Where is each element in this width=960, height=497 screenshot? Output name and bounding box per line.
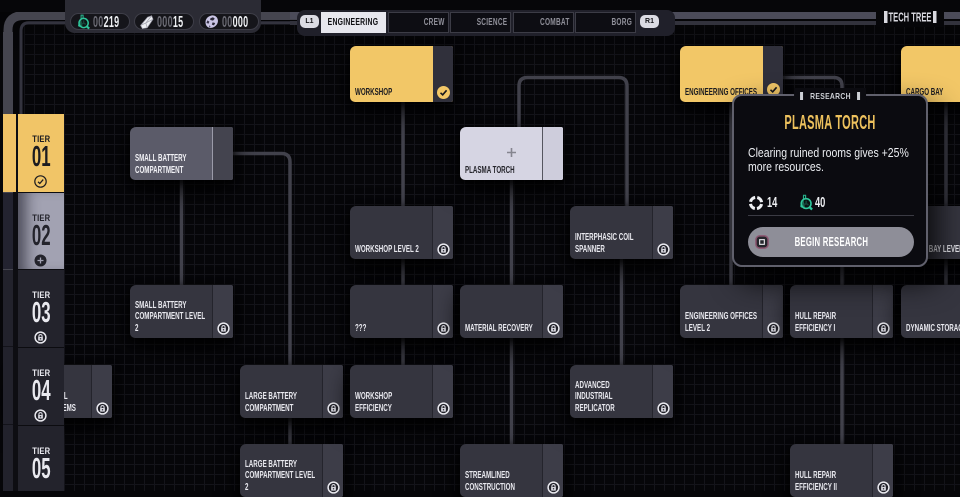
svg-text:TECH TREE: TECH TREE <box>889 11 932 25</box>
